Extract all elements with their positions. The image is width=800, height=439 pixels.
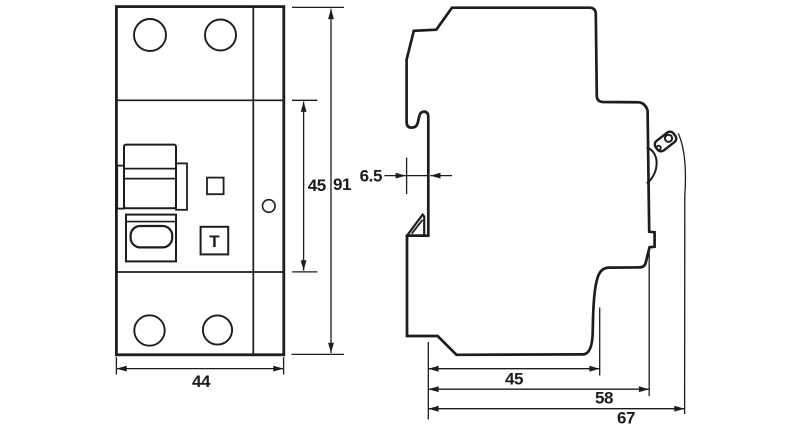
front-view: T — [116, 7, 283, 355]
test-button-label: T — [209, 232, 220, 251]
drawing-canvas: T 44 45 91 — [0, 0, 800, 439]
side-view — [407, 8, 686, 414]
dim-label-depth-mid: 58 — [595, 389, 613, 408]
rail-clip-wedge — [407, 215, 424, 236]
dim-label-depth-inner: 45 — [505, 370, 523, 389]
side-profile-outline — [407, 8, 655, 355]
lever-swing-arc — [678, 134, 685, 415]
front-housing-outline — [116, 7, 283, 355]
dim-label-height-overall: 91 — [333, 175, 351, 194]
dim-label-depth-overall: 67 — [617, 409, 635, 428]
toggle-lever — [653, 130, 678, 153]
dim-label-rail-depth: 6.5 — [360, 167, 382, 186]
dim-label-width: 44 — [192, 372, 211, 391]
technical-drawing: T 44 45 91 — [0, 0, 800, 439]
dim-label-height-inner: 45 — [308, 176, 326, 195]
